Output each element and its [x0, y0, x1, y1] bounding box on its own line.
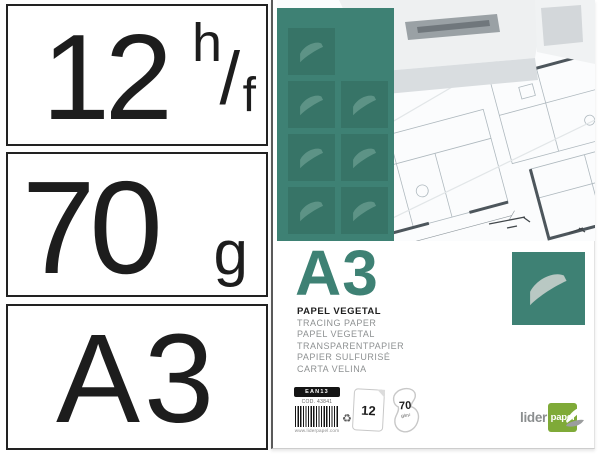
spec-box-sheets: 12 h / f [6, 4, 268, 146]
teal-logo-column [277, 8, 394, 241]
brand-green-box: papel [548, 403, 577, 432]
brand-tile [288, 134, 335, 181]
brand-tile [288, 81, 335, 128]
package: A3 PAPEL VEGETAL TRACING PAPER PAPEL VEG… [271, 0, 595, 449]
brand-logo-tile [512, 252, 585, 325]
liderpapel-swoosh-icon [295, 141, 329, 175]
page-fold-icon [377, 389, 385, 397]
sheet-count-badge: 12 [352, 388, 385, 432]
brand-tile [288, 187, 335, 234]
liderpapel-swoosh-icon [295, 194, 329, 228]
product-image: 12 h / f 70 g A3 [0, 0, 600, 457]
liderpapel-swoosh-icon [295, 35, 329, 69]
liderpapel-logo: lider papel [520, 403, 577, 432]
brand-tile [288, 28, 335, 75]
brand-name-prefix: lider [520, 410, 547, 425]
recycle-icon: ♻ [342, 412, 352, 425]
unit-hojas: h [192, 12, 222, 74]
unit-slash: / [219, 36, 240, 121]
liderpapel-swoosh-icon [348, 88, 382, 122]
product-name-es: PAPEL VEGETAL [297, 306, 404, 318]
product-code: COD. 43841 [294, 399, 340, 405]
product-name-de: TRANSPARENTPAPIER [297, 341, 404, 353]
product-name-en: TRACING PAPER [297, 318, 404, 330]
unit-feuilles: f [243, 68, 256, 123]
liderpapel-swoosh-icon [295, 88, 329, 122]
product-names: PAPEL VEGETAL TRACING PAPER PAPEL VEGETA… [297, 306, 404, 375]
brand-tile [341, 81, 388, 128]
sheet-count: 12 [361, 402, 376, 418]
product-name-it: CARTA VELINA [297, 364, 404, 376]
barcode-label: EAN13 COD. 43841 www.liderpapel.com [294, 387, 340, 433]
liderpapel-swoosh-icon [348, 141, 382, 175]
ean-header: EAN13 [294, 387, 340, 397]
package-size-title: A3 [295, 241, 379, 305]
liderpapel-swoosh-icon [348, 194, 382, 228]
spec-box-weight: 70 g [6, 152, 268, 297]
brand-tile [341, 187, 388, 234]
website-url: www.liderpapel.com [294, 428, 340, 433]
unit-grams: g [214, 218, 248, 289]
empty-cell [341, 28, 388, 75]
barcode [295, 406, 339, 427]
brand-tile [341, 134, 388, 181]
weight-value: 70 [22, 162, 157, 294]
sheet-count-value: 12 [42, 16, 168, 138]
product-name-fr: PAPIER SULFURISÉ [297, 352, 404, 364]
liderpapel-swoosh-icon [563, 404, 585, 432]
weight-badge: 70 g/m² [389, 386, 422, 436]
liderpapel-swoosh-icon [522, 262, 576, 316]
size-value: A3 [8, 316, 266, 442]
spec-box-size: A3 [6, 304, 268, 450]
product-name-pt: PAPEL VEGETAL [297, 329, 404, 341]
weight-value: 70 [389, 399, 421, 413]
